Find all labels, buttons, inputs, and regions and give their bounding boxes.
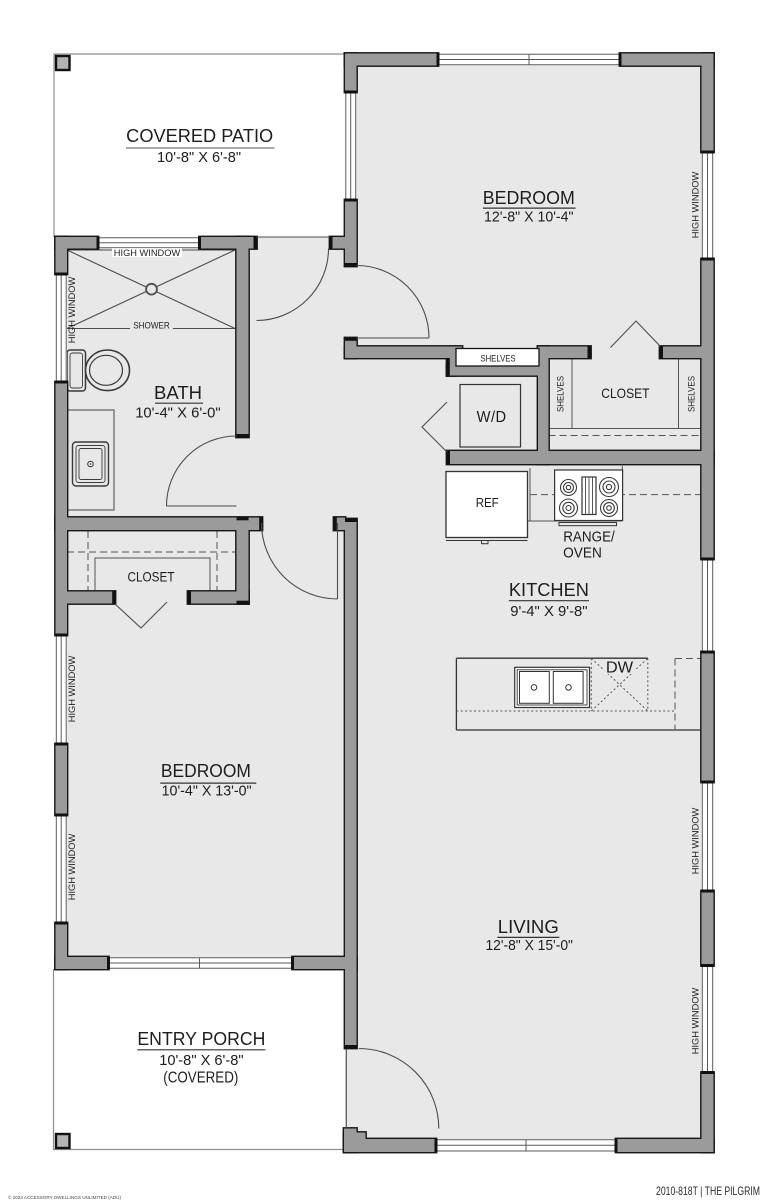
svg-text:KITCHEN: KITCHEN xyxy=(509,580,589,600)
svg-text:HIGH WINDOW: HIGH WINDOW xyxy=(67,277,78,344)
svg-text:RANGE/: RANGE/ xyxy=(563,529,615,546)
svg-text:HIGH WINDOW: HIGH WINDOW xyxy=(691,172,702,239)
svg-text:W/D: W/D xyxy=(477,409,507,426)
svg-text:HIGH WINDOW: HIGH WINDOW xyxy=(114,248,180,259)
svg-text:SHELVES: SHELVES xyxy=(687,376,698,412)
svg-text:HIGH WINDOW: HIGH WINDOW xyxy=(691,988,702,1055)
svg-text:SHOWER: SHOWER xyxy=(133,320,170,331)
svg-text:(COVERED): (COVERED) xyxy=(163,1070,238,1087)
svg-text:HIGH WINDOW: HIGH WINDOW xyxy=(67,656,78,723)
svg-text:10'-8" X 6'-8": 10'-8" X 6'-8" xyxy=(159,1052,243,1069)
svg-text:SHELVES: SHELVES xyxy=(556,376,567,412)
svg-text:10'-4" X 6'-0": 10'-4" X 6'-0" xyxy=(135,405,220,422)
svg-text:10'-8" X 6'-8": 10'-8" X 6'-8" xyxy=(157,149,241,166)
svg-text:HIGH WINDOW: HIGH WINDOW xyxy=(691,808,702,875)
svg-text:ENTRY PORCH: ENTRY PORCH xyxy=(137,1029,265,1049)
svg-text:OVEN: OVEN xyxy=(563,544,602,561)
svg-text:BEDROOM: BEDROOM xyxy=(161,761,251,781)
svg-text:CLOSET: CLOSET xyxy=(128,569,175,585)
svg-text:CLOSET: CLOSET xyxy=(601,385,650,401)
svg-text:DW: DW xyxy=(606,660,634,677)
svg-text:BEDROOM: BEDROOM xyxy=(483,188,575,208)
svg-text:9'-4" X 9'-8": 9'-4" X 9'-8" xyxy=(510,603,587,620)
svg-text:HIGH WINDOW: HIGH WINDOW xyxy=(67,834,78,901)
svg-text:2010-818T | THE PILGRIM: 2010-818T | THE PILGRIM xyxy=(656,1184,760,1198)
svg-text:LIVING: LIVING xyxy=(498,917,559,937)
svg-text:10'-4" X 13'-0": 10'-4" X 13'-0" xyxy=(162,783,252,800)
svg-text:SHELVES: SHELVES xyxy=(480,354,515,365)
svg-text:BATH: BATH xyxy=(154,383,202,403)
svg-text:12'-8" X 10'-4": 12'-8" X 10'-4" xyxy=(484,209,574,226)
svg-text:REF: REF xyxy=(476,495,499,510)
svg-text:12'-8" X 15'-0": 12'-8" X 15'-0" xyxy=(485,937,573,954)
svg-text:COVERED PATIO: COVERED PATIO xyxy=(126,126,273,146)
svg-text:© 2023 ACCESSORY DWELLINGS UNL: © 2023 ACCESSORY DWELLINGS UNLIMITED (AD… xyxy=(8,1194,122,1200)
